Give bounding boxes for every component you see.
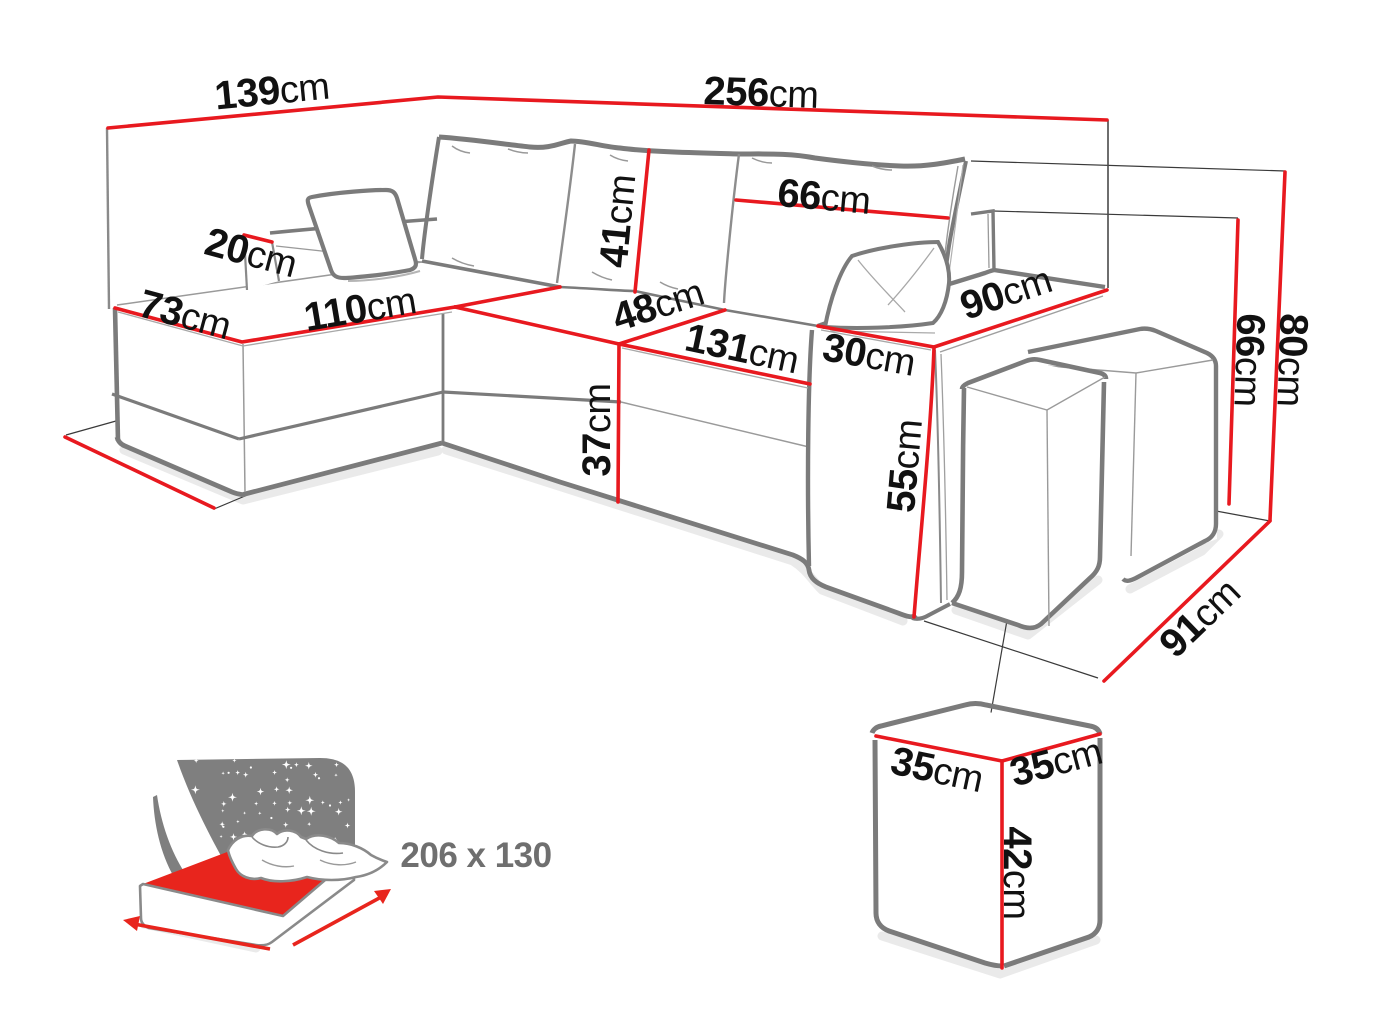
svg-text:66cm: 66cm <box>1225 313 1272 408</box>
svg-text:256cm: 256cm <box>703 69 819 117</box>
svg-text:37cm: 37cm <box>575 383 619 476</box>
svg-text:80cm: 80cm <box>1268 313 1315 408</box>
svg-text:206 x 130: 206 x 130 <box>400 836 551 875</box>
svg-text:42cm: 42cm <box>995 826 1039 919</box>
